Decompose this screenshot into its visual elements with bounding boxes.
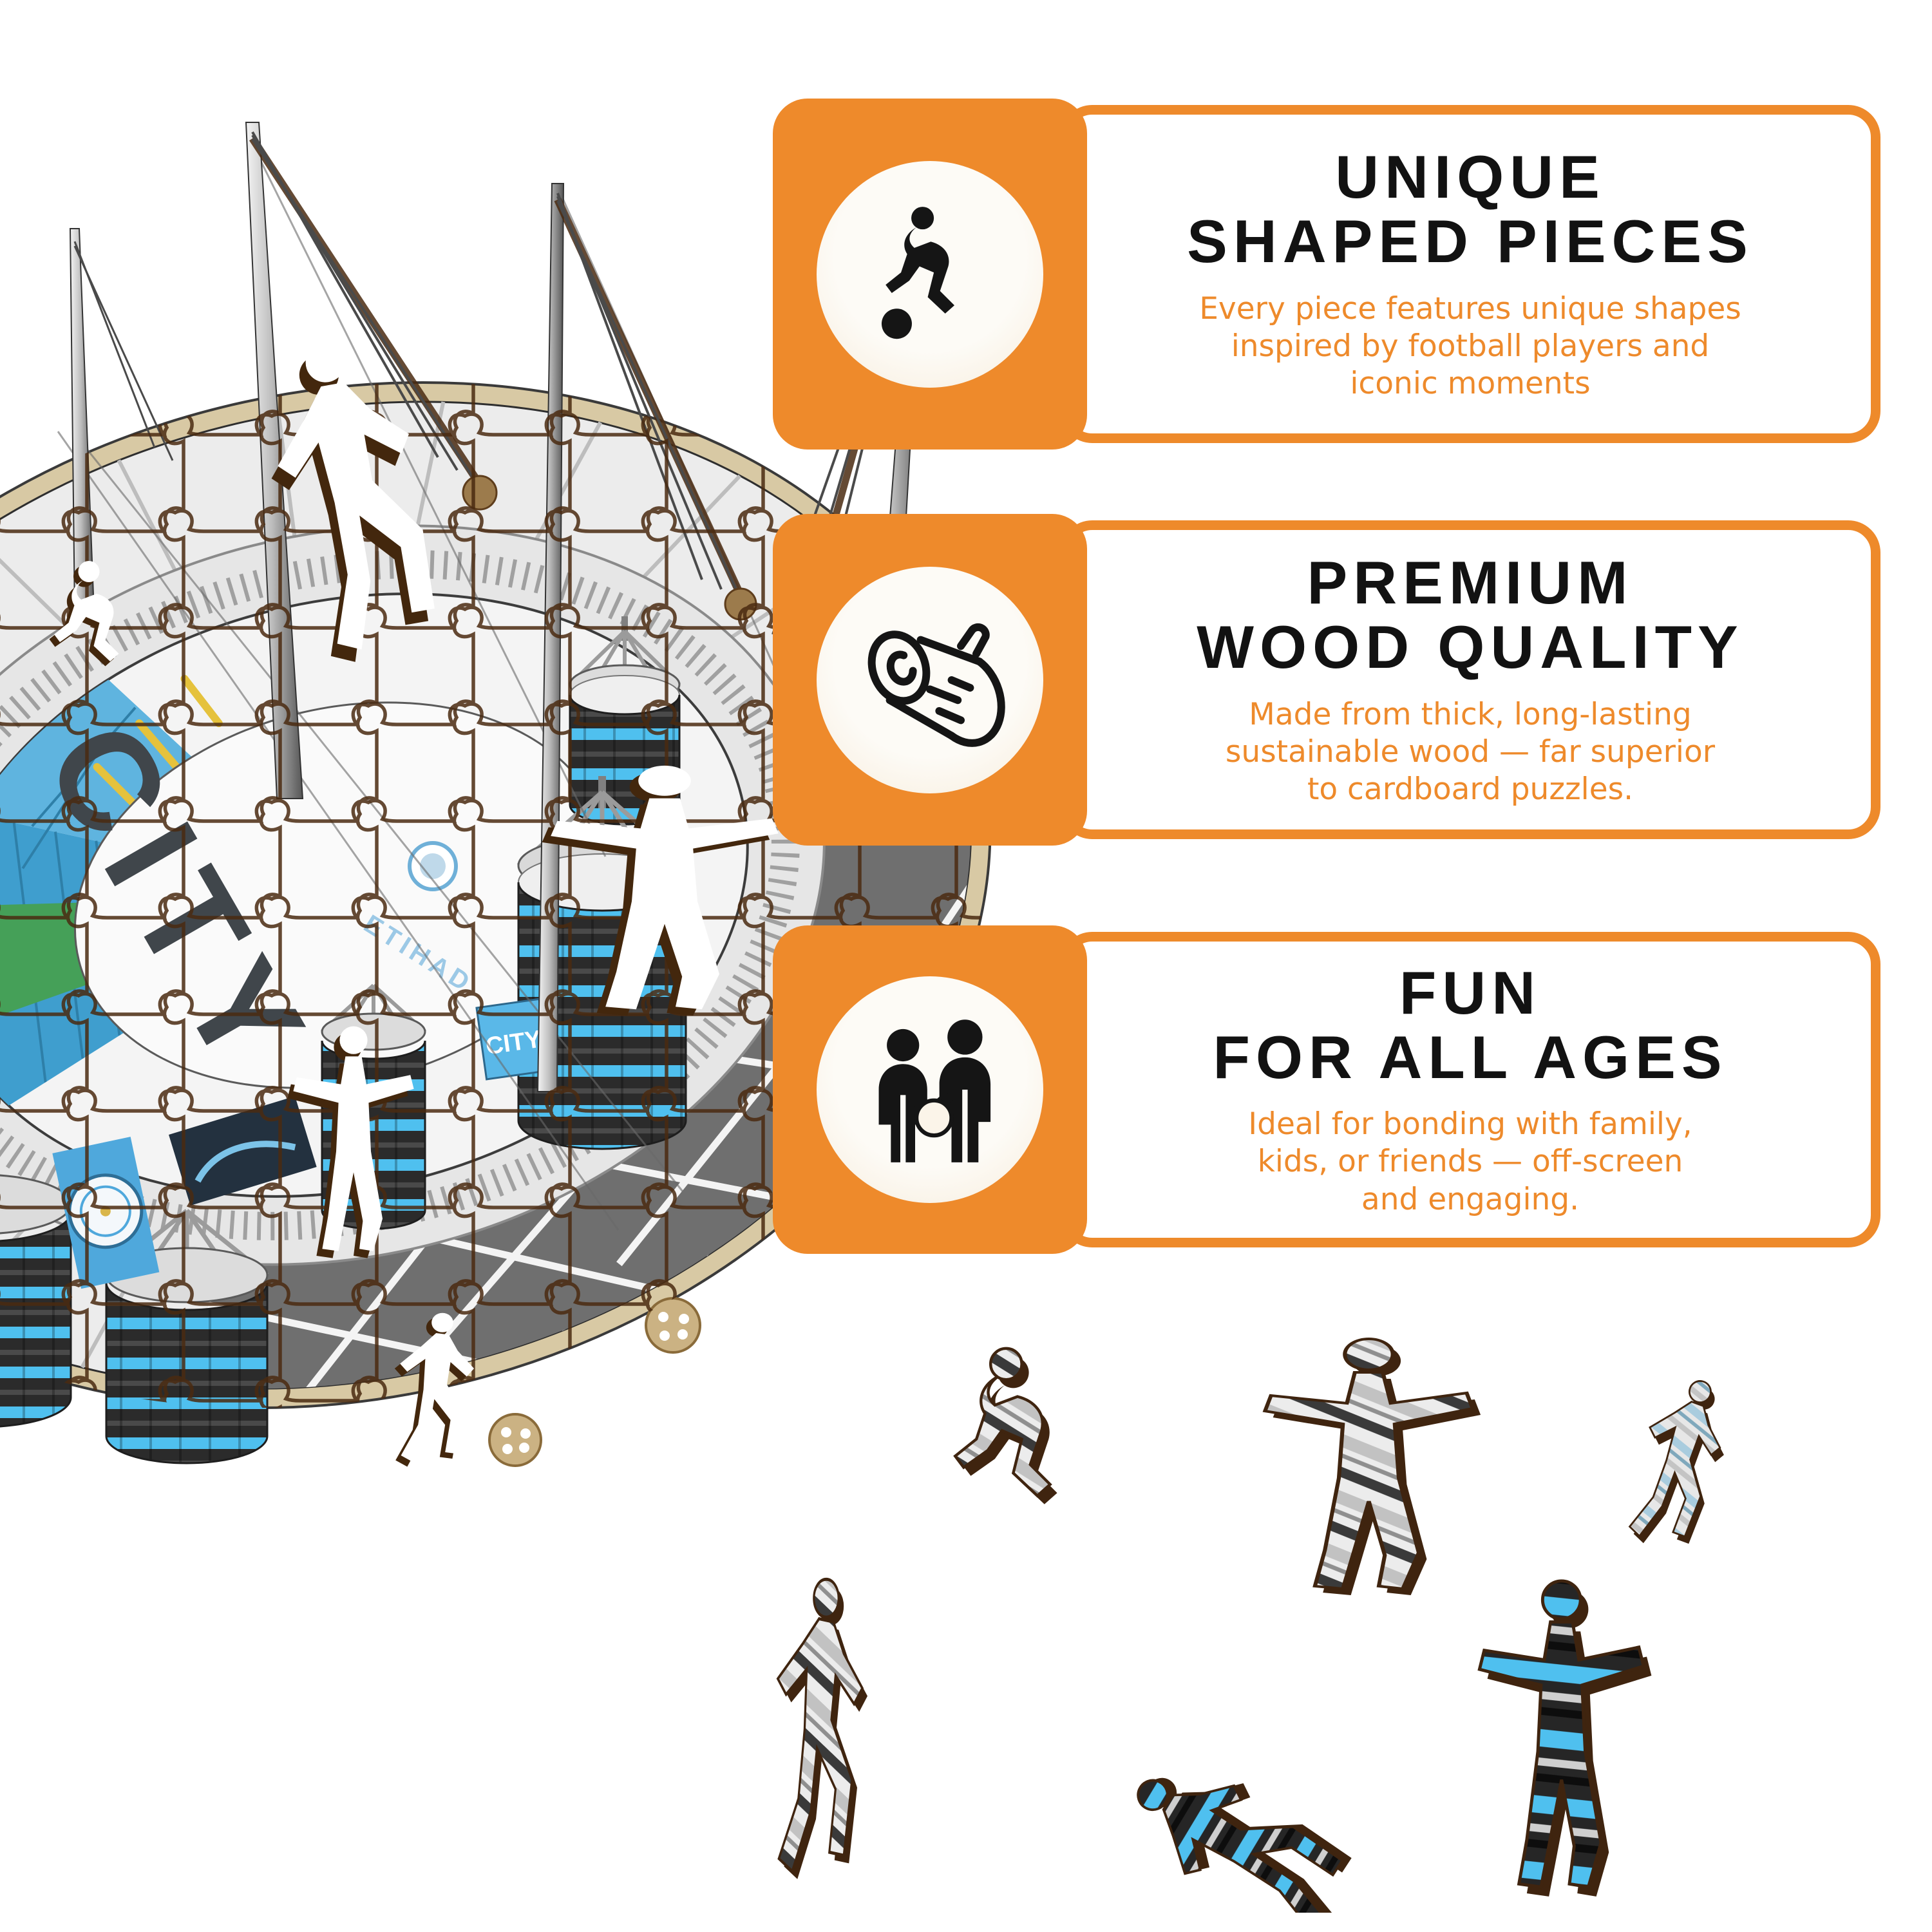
feature-body-line: and engaging. (1248, 1181, 1692, 1218)
feature-title: FUN FOR ALL AGES (1213, 961, 1727, 1089)
puzzle-piece-arms-out-player (1265, 1339, 1481, 1595)
puzzle-piece-diving-player (1115, 1745, 1372, 1913)
feature-box-fun-all-ages: FUN FOR ALL AGES Ideal for bonding with … (773, 925, 1880, 1254)
feature-body-line: sustainable wood — far superior (1226, 734, 1715, 771)
feature-body-line: Ideal for bonding with family, (1248, 1106, 1692, 1143)
feature-body-line: inspired by football players and (1199, 328, 1741, 365)
icon-circle (817, 567, 1043, 793)
feature-body-line: to cardboard puzzles. (1226, 771, 1715, 808)
feature-body: Every piece features unique shapes inspi… (1199, 290, 1741, 403)
puzzle-piece-kicking-player (1479, 1581, 1651, 1897)
page: CITY ETIHAD (0, 0, 1932, 1932)
icon-circle (817, 161, 1043, 388)
feature-box-unique-pieces: UNIQUE SHAPED PIECES Every piece feature… (773, 99, 1880, 450)
feature-icon-block (773, 925, 1087, 1254)
feature-title: UNIQUE SHAPED PIECES (1187, 145, 1754, 273)
feature-title-line1: FUN (1213, 961, 1727, 1025)
feature-body-line: Made from thick, long-lasting (1226, 696, 1715, 734)
feature-body-line: kids, or friends — off-screen (1248, 1143, 1692, 1180)
feature-title-line1: UNIQUE (1187, 145, 1754, 209)
feature-title-line2: SHAPED PIECES (1187, 209, 1754, 274)
feature-title: PREMIUM WOOD QUALITY (1197, 551, 1744, 679)
feature-body-line: Every piece features unique shapes (1199, 290, 1741, 328)
feature-title-line1: PREMIUM (1197, 551, 1744, 615)
feature-body-line: iconic moments (1199, 365, 1741, 402)
puzzle-piece-running-player (1626, 1372, 1738, 1555)
feature-panel: UNIQUE SHAPED PIECES Every piece feature… (1060, 105, 1880, 443)
puzzle-piece-crouching-player (955, 1349, 1057, 1504)
feature-body: Made from thick, long-lasting sustainabl… (1226, 696, 1715, 809)
loose-puzzle-pieces (708, 1307, 1868, 1913)
feature-body: Ideal for bonding with family, kids, or … (1248, 1106, 1692, 1218)
rim-anchor-wheel (489, 1414, 541, 1466)
feature-title-line2: FOR ALL AGES (1213, 1025, 1727, 1090)
feature-icon-block (773, 99, 1087, 450)
football-player-icon (855, 198, 1006, 350)
feature-title-line2: WOOD QUALITY (1197, 615, 1744, 679)
family-icon (856, 1016, 1004, 1164)
wood-log-icon (853, 603, 1007, 757)
feature-box-premium-wood: PREMIUM WOOD QUALITY Made from thick, lo… (773, 514, 1880, 846)
puzzle-piece-dribbling-player (778, 1579, 867, 1879)
feature-panel: FUN FOR ALL AGES Ideal for bonding with … (1060, 932, 1880, 1247)
feature-icon-block (773, 514, 1087, 846)
feature-panel: PREMIUM WOOD QUALITY Made from thick, lo… (1060, 520, 1880, 839)
icon-circle (817, 976, 1043, 1203)
